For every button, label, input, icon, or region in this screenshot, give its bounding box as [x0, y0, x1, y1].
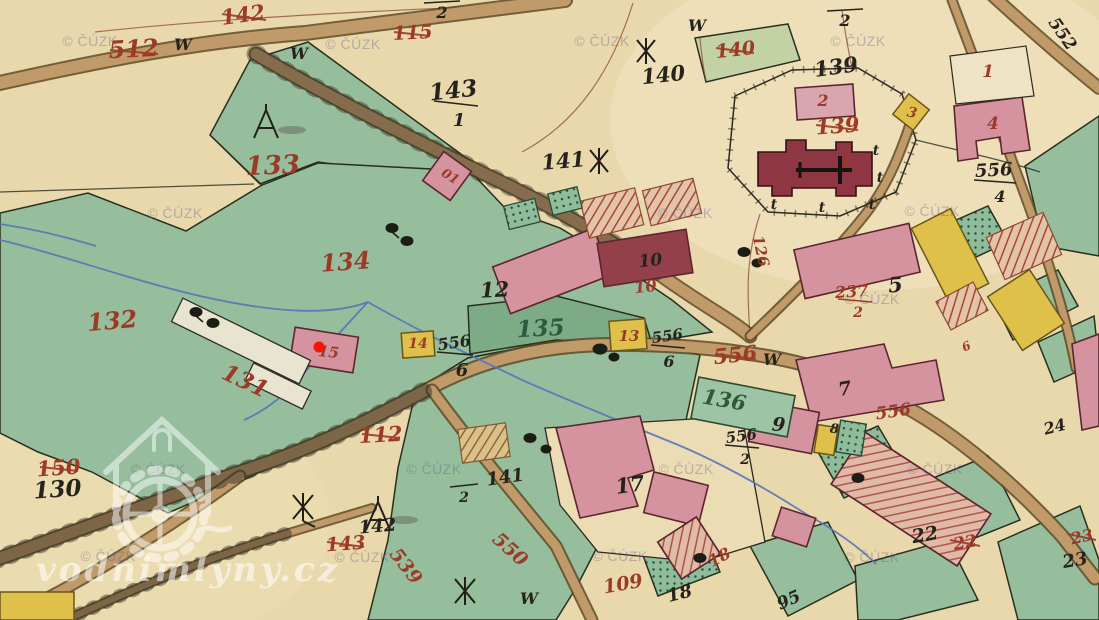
label-house-1: 1 — [982, 62, 994, 82]
label-house-2: 2 — [816, 91, 828, 110]
label-140-old: 140 — [714, 37, 756, 63]
label-t-mark: t — [869, 197, 876, 213]
label-t-mark: t — [819, 200, 826, 216]
label-house-13: 13 — [619, 327, 640, 345]
label-143-den: 1 — [453, 110, 466, 131]
label-w-meadow: W — [290, 44, 310, 63]
label-115: 115 — [392, 21, 433, 45]
label-556-4-den: 4 — [994, 187, 1005, 206]
label-10-red: 10 — [633, 276, 657, 297]
label-12: 12 — [479, 276, 510, 302]
label-t-mark: t — [877, 170, 884, 186]
label-134: 134 — [319, 245, 371, 277]
label-556-6a-den: 6 — [456, 360, 469, 381]
label-112: 112 — [358, 421, 403, 448]
label-w-meadow: W — [763, 350, 783, 369]
label-top-frac-den: 2 — [435, 3, 447, 22]
historical-cadastral-map-viewport[interactable]: 512 142 115 140 139 133 134 132 131 150 … — [0, 0, 1099, 620]
label-556-struck: 556 — [712, 340, 759, 369]
label-556-6b-den: 6 — [663, 352, 674, 371]
label-t-mark: t — [771, 197, 778, 213]
label-133: 133 — [245, 150, 300, 182]
label-141: 141 — [540, 146, 586, 175]
label-556-2-den: 2 — [739, 452, 750, 468]
label-top-frac2-den: 2 — [838, 11, 850, 30]
label-w-meadow: W — [520, 589, 540, 608]
label-135: 135 — [516, 314, 565, 343]
label-143-num: 143 — [428, 75, 479, 107]
label-237-num: 237 — [833, 281, 869, 302]
label-512: 512 — [108, 33, 160, 65]
label-140: 140 — [640, 60, 687, 89]
label-237-den: 2 — [852, 305, 863, 321]
label-house-4: 4 — [987, 114, 999, 134]
label-132: 132 — [86, 304, 138, 337]
label-17: 17 — [614, 470, 647, 499]
cadastral-map: 512 142 115 140 139 133 134 132 131 150 … — [0, 0, 1099, 620]
label-5: 5 — [887, 271, 904, 297]
label-22-red: 22 — [951, 531, 979, 555]
building-8-green — [836, 420, 867, 456]
label-23: 23 — [1060, 548, 1089, 573]
label-130: 130 — [33, 474, 83, 504]
selected-mill-marker[interactable] — [314, 342, 325, 353]
label-556-4-num: 556 — [974, 159, 1013, 182]
hatched-parcel-5 — [458, 423, 510, 463]
label-w-meadow: W — [688, 16, 708, 35]
building-sw-corner — [0, 592, 74, 620]
label-139-old: 139 — [815, 111, 861, 139]
label-house-9: 9 — [771, 413, 786, 436]
label-house-14: 14 — [408, 336, 427, 352]
label-house-10: 10 — [638, 250, 664, 272]
label-t-mark: t — [873, 143, 880, 159]
label-w-meadow: W — [174, 35, 194, 54]
label-141-den: 2 — [458, 490, 469, 506]
label-142b: 142 — [358, 514, 397, 538]
label-house-8: 8 — [829, 422, 840, 438]
label-church-1: 1 — [841, 155, 851, 171]
label-22: 22 — [909, 522, 940, 548]
